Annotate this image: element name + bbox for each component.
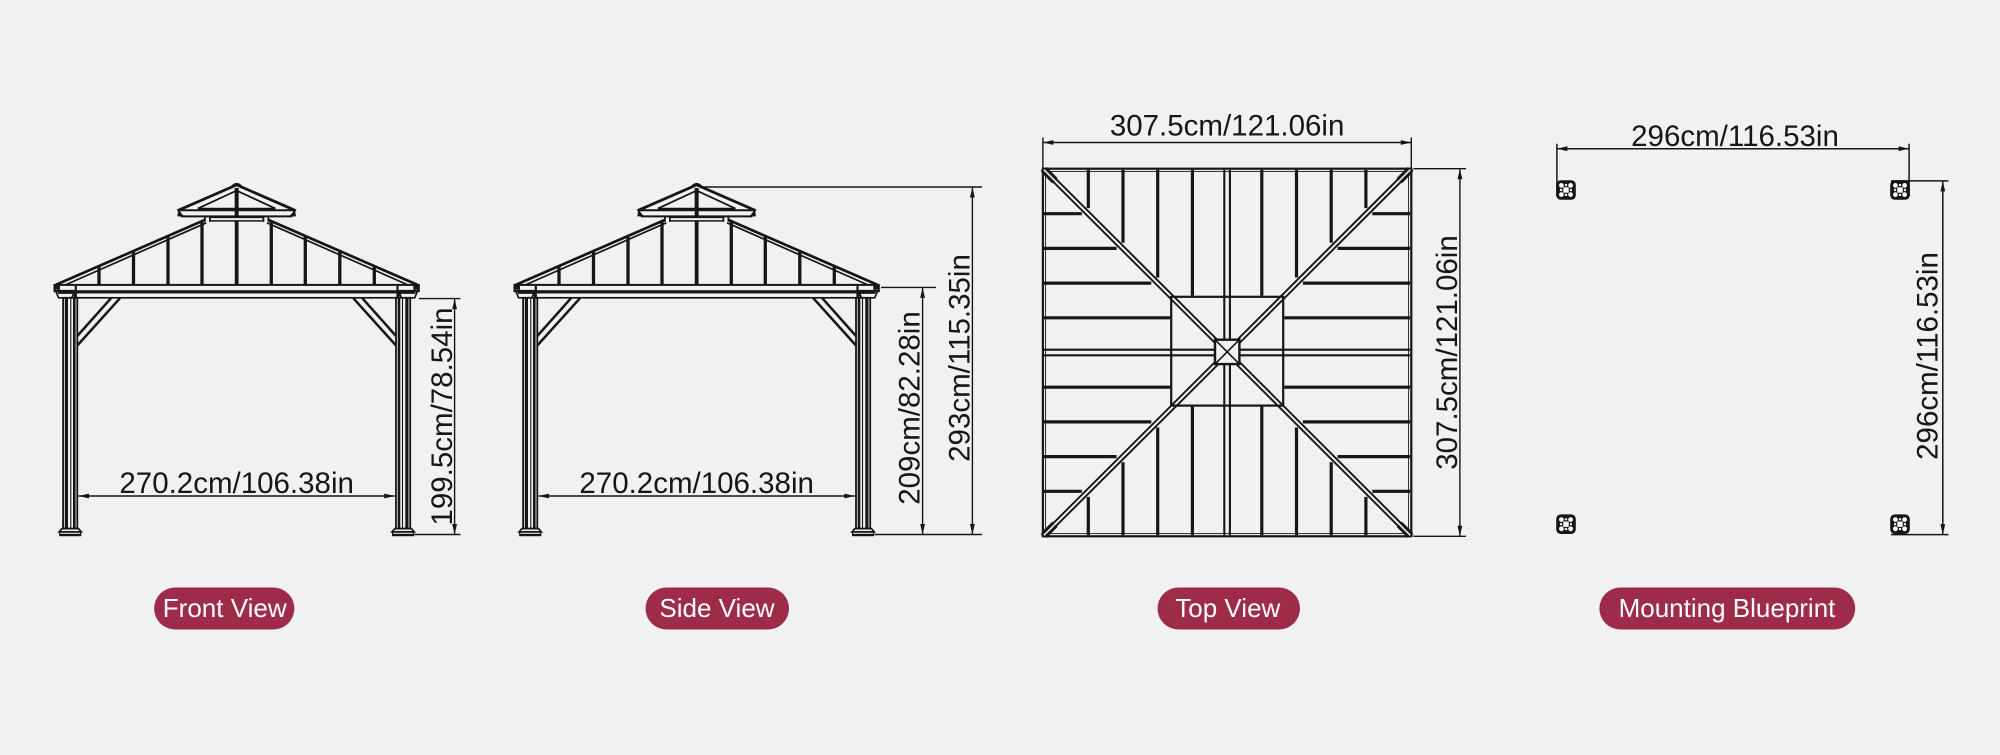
svg-text:270.2cm/106.38in: 270.2cm/106.38in: [119, 467, 354, 500]
svg-text:307.5cm/121.06in: 307.5cm/121.06in: [1431, 235, 1464, 470]
svg-text:Mounting Blueprint: Mounting Blueprint: [1619, 593, 1837, 623]
svg-text:199.5cm/78.54in: 199.5cm/78.54in: [426, 307, 459, 525]
svg-text:296cm/116.53in: 296cm/116.53in: [1912, 252, 1945, 460]
svg-text:296cm/116.53in: 296cm/116.53in: [1631, 120, 1839, 153]
svg-text:Top View: Top View: [1175, 593, 1280, 623]
svg-text:Side View: Side View: [659, 593, 774, 623]
svg-text:Front View: Front View: [163, 593, 287, 623]
svg-text:270.2cm/106.38in: 270.2cm/106.38in: [579, 467, 814, 500]
svg-text:307.5cm/121.06in: 307.5cm/121.06in: [1110, 110, 1345, 143]
svg-text:293cm/115.35in: 293cm/115.35in: [944, 254, 977, 462]
svg-text:209cm/82.28in: 209cm/82.28in: [894, 311, 927, 505]
